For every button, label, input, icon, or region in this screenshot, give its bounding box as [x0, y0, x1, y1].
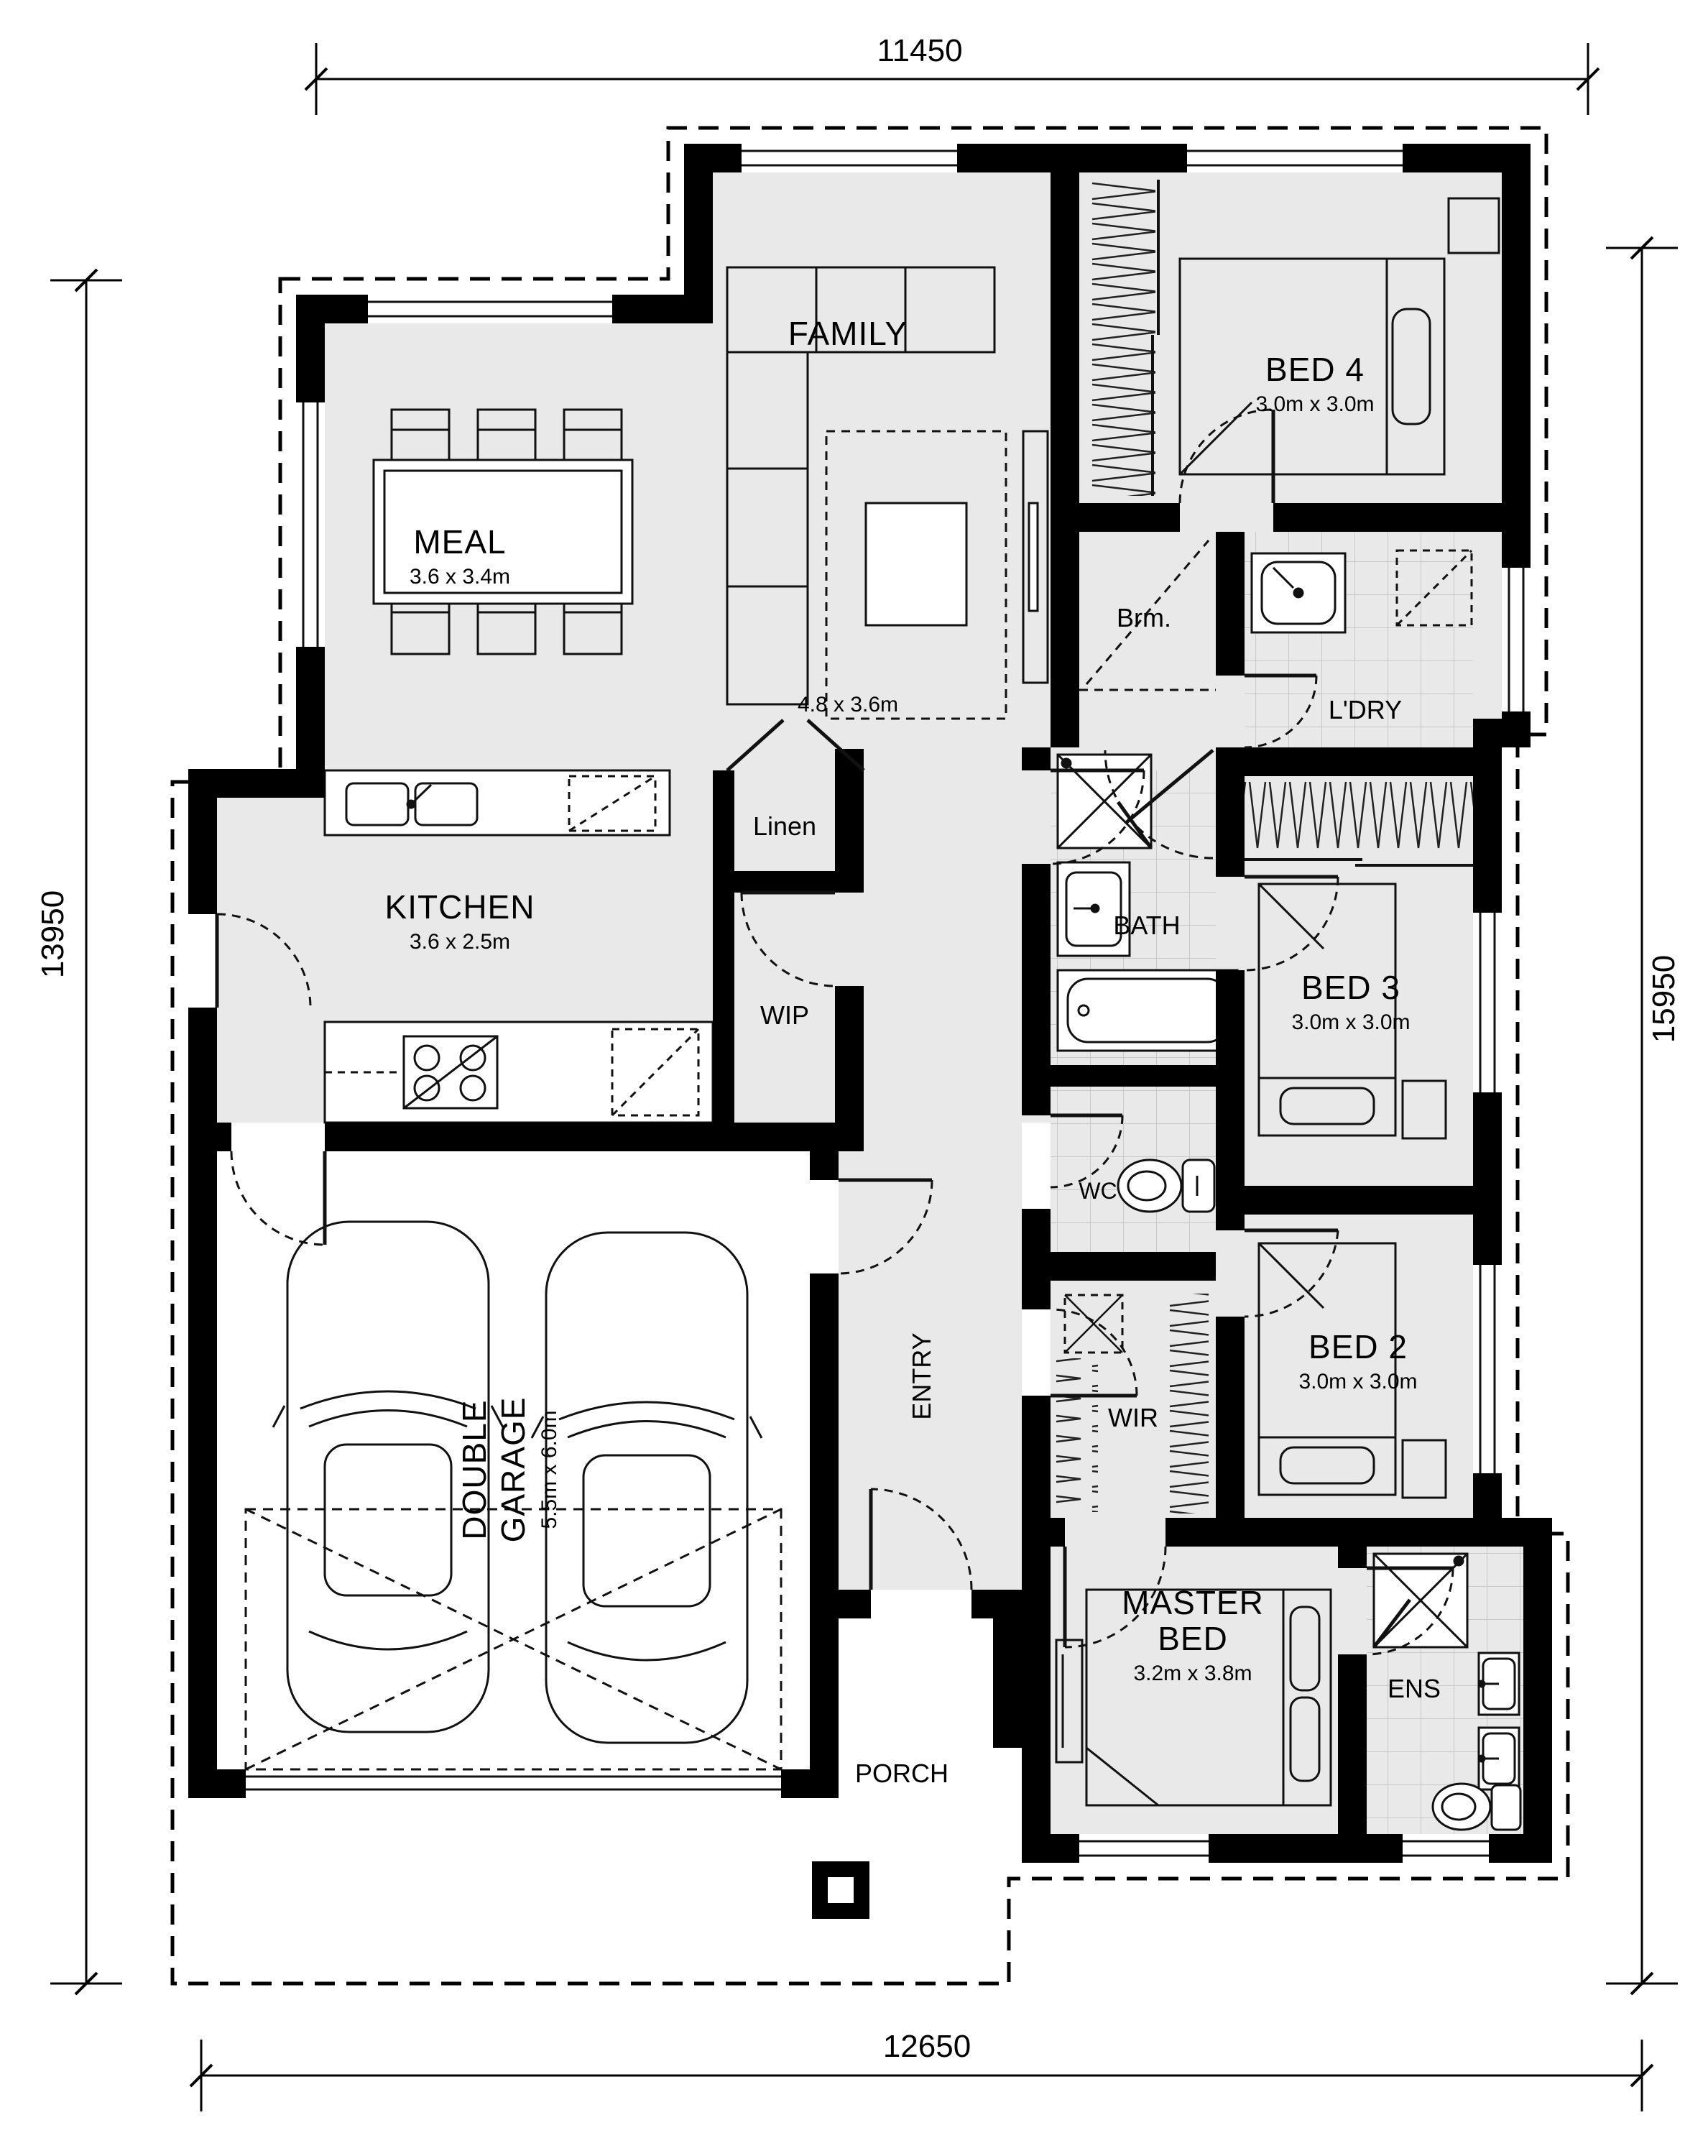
label-wir: WIR	[1108, 1403, 1158, 1432]
label-family-size: 4.8 x 3.6m	[798, 693, 898, 717]
label-master: MASTER	[1122, 1584, 1264, 1621]
label-porch: PORCH	[855, 1759, 948, 1788]
label-bed4: BED 4	[1265, 351, 1365, 388]
label-wip: WIP	[760, 1000, 809, 1030]
label-kitchen: KITCHEN	[385, 888, 535, 926]
label-bed3: BED 3	[1301, 969, 1400, 1006]
family-coffee-table	[866, 503, 966, 625]
label-garage: DOUBLE	[456, 1399, 493, 1539]
label-ldry: L'DRY	[1329, 695, 1402, 724]
bed4-robe	[1086, 180, 1158, 496]
label-family: FAMILY	[788, 315, 908, 352]
label-bed2: BED 2	[1308, 1328, 1408, 1365]
label-master-size: 3.2m x 3.8m	[1133, 1662, 1252, 1685]
label-ens: ENS	[1388, 1674, 1441, 1703]
label-garage-size: 5.5m x 6.0m	[537, 1410, 561, 1529]
bed3-robe	[1245, 780, 1473, 865]
label-wc: WC	[1079, 1178, 1117, 1204]
dim-top: 11450	[877, 33, 962, 68]
label-bed3-size: 3.0m x 3.0m	[1291, 1010, 1410, 1034]
dim-bottom: 12650	[883, 2029, 971, 2064]
label-kitchen-size: 3.6 x 2.5m	[410, 930, 510, 954]
kitchen-island-bench	[325, 770, 670, 835]
label-garage-2: GARAGE	[494, 1397, 532, 1543]
kitchen-cooktop-bench	[325, 1022, 713, 1123]
label-bed2-size: 3.0m x 3.0m	[1298, 1370, 1417, 1393]
label-linen: Linen	[753, 811, 816, 841]
label-brm: Brm.	[1117, 603, 1171, 632]
label-meal-size: 3.6 x 3.4m	[410, 565, 510, 589]
floor-plan-page: 11450 13950 15950 12650 FAMILY 4.8 x 3.6…	[0, 0, 1708, 2156]
label-bed4-size: 3.0m x 3.0m	[1255, 392, 1374, 416]
label-bath: BATH	[1113, 911, 1180, 940]
family-tv-unit	[1023, 431, 1048, 683]
dim-right: 15950	[1646, 955, 1681, 1043]
wc-toilet	[1118, 1160, 1214, 1212]
garage-door-panel	[246, 1777, 781, 1789]
dim-left: 13950	[35, 890, 70, 978]
label-entry: ENTRY	[907, 1332, 936, 1419]
floor-plan-drawing: 11450 13950 15950 12650 FAMILY 4.8 x 3.6…	[0, 0, 1708, 2156]
label-master-2: BED	[1158, 1620, 1228, 1657]
label-meal: MEAL	[413, 523, 506, 561]
porch-column	[812, 1861, 869, 1919]
